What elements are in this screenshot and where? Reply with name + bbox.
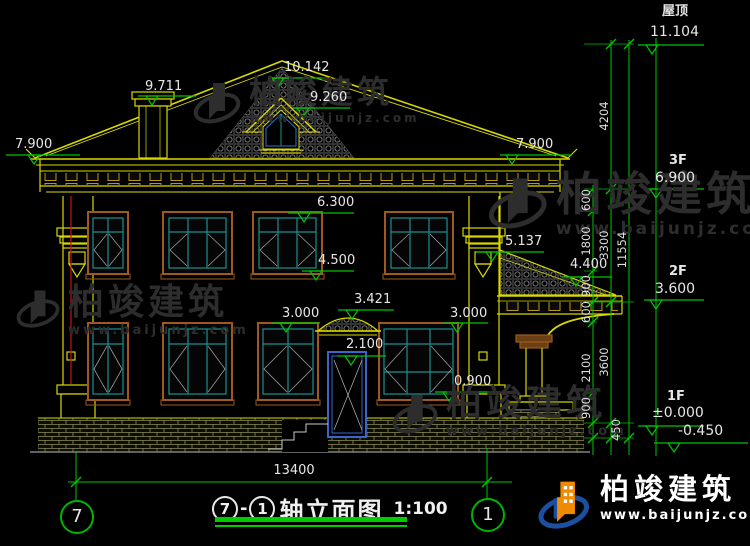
dim-width-13400: 13400 <box>264 464 324 477</box>
baijun-logo-icon <box>193 76 243 132</box>
elev-mark-2f-win-sill: 4.500 <box>318 254 355 267</box>
title-scale: 1:100 <box>393 499 447 519</box>
watermark: 柏竣建筑 www.baijunjz.com <box>16 284 249 338</box>
elev-mark-dormer: 9.260 <box>310 91 347 104</box>
elev-mark-eave-right: 7.900 <box>516 138 553 151</box>
level-roof-name: 屋顶 <box>662 5 688 18</box>
dim-total-11554: 11554 <box>616 228 628 272</box>
dim-900-b: 900 <box>580 386 592 430</box>
elev-mark-door-top: 2.100 <box>346 338 383 351</box>
title-underline <box>215 525 407 527</box>
baijun-logo-icon <box>538 474 594 538</box>
level-3f-value: 6.900 <box>655 171 695 185</box>
elev-mark-chimney: 9.711 <box>145 80 182 93</box>
watermark: 柏竣建筑 www.baijunjz.com <box>193 76 420 132</box>
dim-3600: 3600 <box>598 340 610 384</box>
dim-1800: 1800 <box>580 219 592 263</box>
watermark-brand: 柏竣建筑 <box>68 284 249 322</box>
dim-3300: 3300 <box>598 223 610 267</box>
axis-bubble-1: 1 <box>471 498 505 532</box>
footer-brand: 柏竣建筑 www.baijunjz.com <box>538 474 750 538</box>
watermark-site: www.baijunjz.com <box>68 323 249 338</box>
dim-4204: 4204 <box>598 94 610 138</box>
level-1f-name: 1F <box>667 390 685 403</box>
elev-mark-1f-win-top-right: 3.000 <box>450 307 487 320</box>
level-ground-value: -0.450 <box>678 424 723 438</box>
baijun-logo-icon <box>392 385 440 445</box>
elev-mark-1f-win-sill: 0.900 <box>454 375 491 388</box>
dim-600-b: 600 <box>580 290 592 334</box>
title-dash: - <box>240 498 247 519</box>
elev-mark-canopy: 3.421 <box>354 293 391 306</box>
elev-mark-eave-left: 7.900 <box>15 138 52 151</box>
watermark-site: www.baijunjz.com <box>446 424 627 439</box>
dim-2100: 2100 <box>580 346 592 390</box>
axis-bubble-7: 7 <box>60 500 94 534</box>
level-roof-value: 11.104 <box>650 25 699 39</box>
level-2f-name: 2F <box>669 265 687 278</box>
windows-2f <box>86 212 455 279</box>
level-1f-value: ±0.000 <box>652 406 704 420</box>
dim-600-a: 600 <box>580 178 592 222</box>
door-canopy <box>315 318 381 335</box>
level-2f-value: 3.600 <box>655 282 695 296</box>
level-3f-name: 3F <box>669 154 687 167</box>
elev-mark-porch-ridge: 5.137 <box>505 235 542 248</box>
elev-mark-1f-win-top-left: 3.000 <box>282 307 319 320</box>
watermark-brand: 柏竣建筑 <box>446 385 627 423</box>
footer-brand-name: 柏竣建筑 <box>600 474 750 506</box>
baijun-logo-icon <box>16 284 62 336</box>
dim-450: 450 <box>610 408 622 452</box>
porch-dentils <box>500 302 618 313</box>
title-underline <box>215 517 407 522</box>
elev-mark-ridge: 10.142 <box>284 61 330 74</box>
elev-mark-2f-win-top: 6.300 <box>317 196 354 209</box>
cornice-dentils <box>42 173 558 185</box>
footer-site: www.baijunjz.com <box>600 508 750 523</box>
chimney <box>132 92 174 158</box>
cad-elevation-screenshot: 柏竣建筑 www.baijunjz.com 柏竣建筑 www.baijunjz.… <box>0 0 750 546</box>
baijun-logo-icon <box>488 170 550 238</box>
watermark-site: www.baijunjz.com <box>249 111 420 125</box>
